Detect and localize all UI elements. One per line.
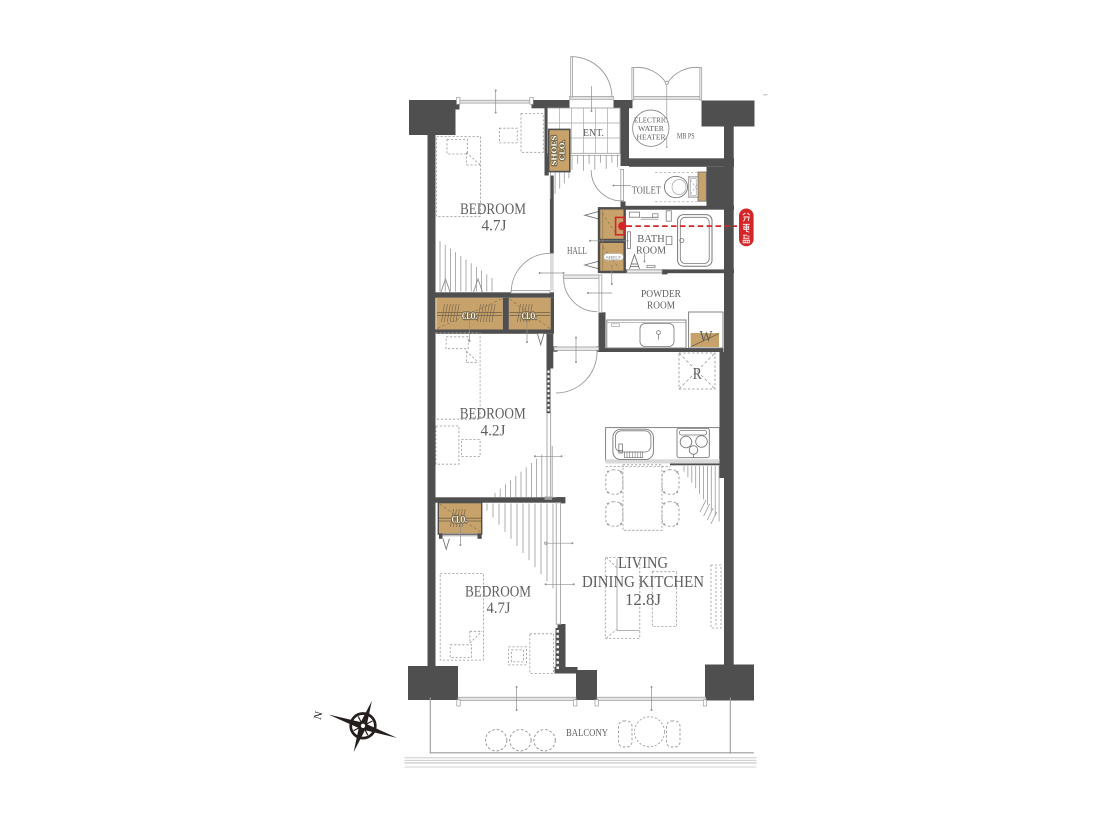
svg-text:CLO.: CLO. <box>559 140 567 160</box>
svg-text:W: W <box>700 329 714 346</box>
svg-text:BEDROOM: BEDROOM <box>465 583 531 600</box>
svg-text:TOILET: TOILET <box>632 186 661 197</box>
svg-text:SHELF: SHELF <box>606 255 621 261</box>
svg-text:CLO.: CLO. <box>462 312 477 322</box>
svg-text:MB PS: MB PS <box>677 131 695 141</box>
svg-text:4.7J: 4.7J <box>487 600 511 617</box>
svg-text:ROOM: ROOM <box>636 246 667 257</box>
svg-text:LIVING: LIVING <box>618 553 668 572</box>
svg-text:BALCONY: BALCONY <box>566 728 608 739</box>
svg-text:DINING KITCHEN: DINING KITCHEN <box>582 572 704 591</box>
svg-text:HEATER: HEATER <box>637 132 666 141</box>
svg-text:BEDROOM: BEDROOM <box>460 406 526 423</box>
svg-text:12.8J: 12.8J <box>625 590 661 609</box>
svg-text:4.7J: 4.7J <box>482 217 507 234</box>
svg-text:4.2J: 4.2J <box>481 423 506 440</box>
svg-text:SHOES: SHOES <box>551 135 559 165</box>
svg-text:BATH: BATH <box>637 234 665 245</box>
svg-text:ROOM: ROOM <box>647 300 675 311</box>
svg-text:POWDER: POWDER <box>641 289 681 300</box>
svg-text:ENT.: ENT. <box>583 127 604 139</box>
svg-text:CLO.: CLO. <box>452 516 467 526</box>
svg-text:R: R <box>693 364 703 383</box>
svg-text:CLO.: CLO. <box>522 312 537 322</box>
svg-text:BEDROOM: BEDROOM <box>460 201 526 218</box>
svg-text:HALL: HALL <box>567 246 587 257</box>
